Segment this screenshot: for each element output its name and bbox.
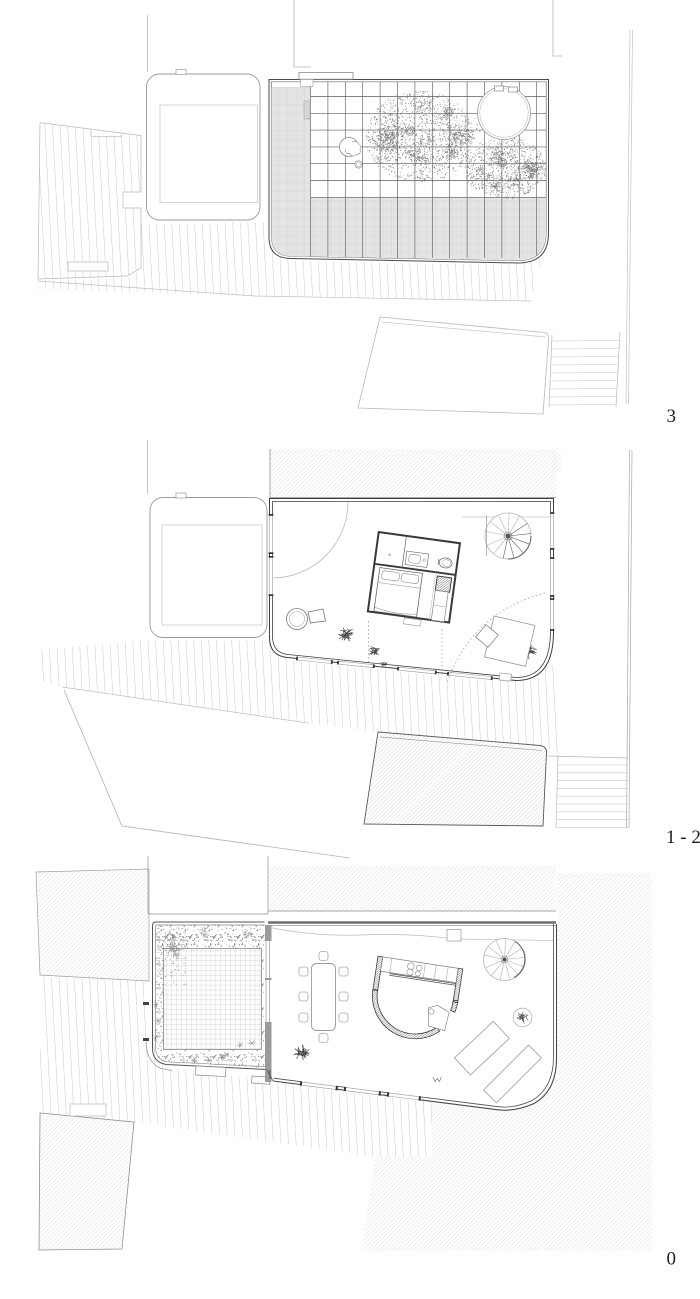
svg-text:0: 0: [667, 1249, 677, 1270]
svg-text:1 - 2: 1 - 2: [666, 827, 700, 848]
svg-text:3: 3: [667, 406, 677, 427]
